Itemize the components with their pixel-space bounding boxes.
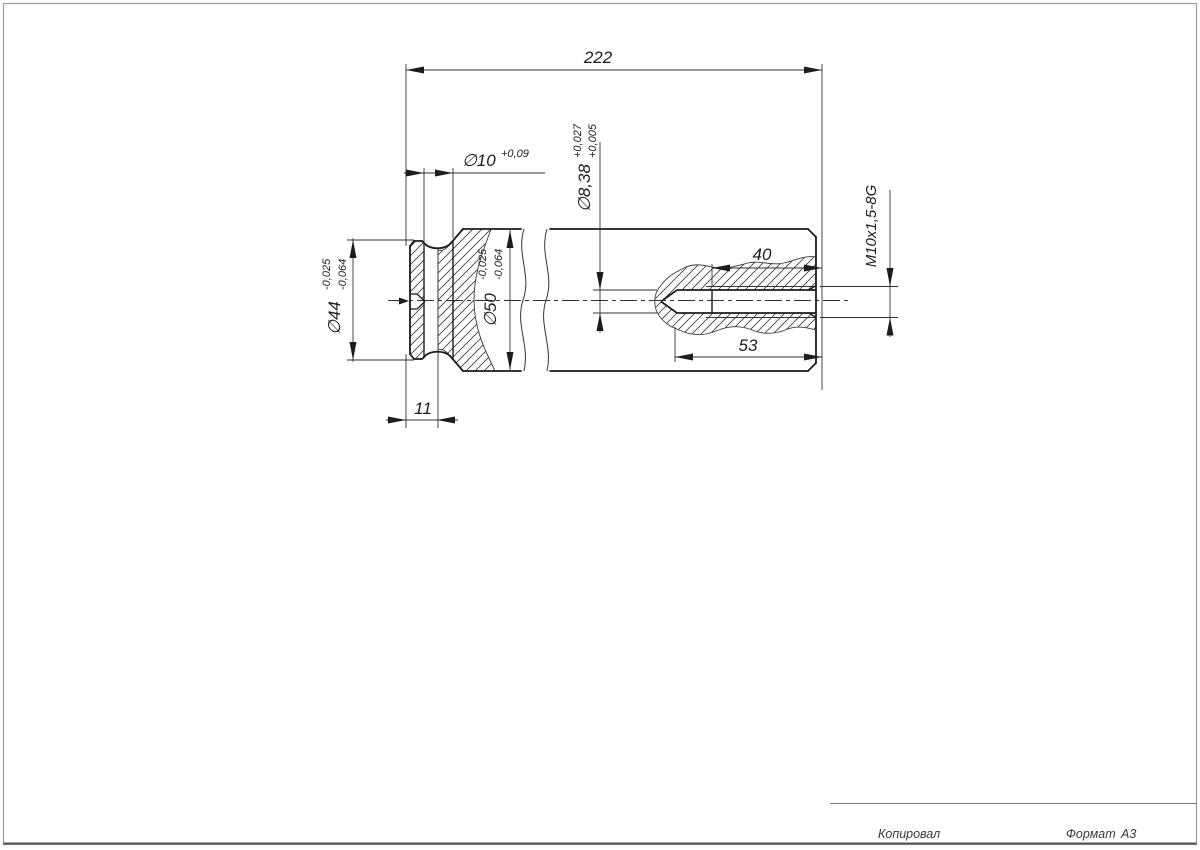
break-lines	[521, 229, 549, 371]
dim-collar-main: ∅44	[325, 301, 344, 335]
dimension-texts: 222 ∅10 +0,09 ∅8,38 +0,027 +0,005 M10x1,…	[321, 48, 880, 418]
copy-stamp: Копировал Формат А3	[878, 827, 1136, 841]
dim-body-main: ∅50	[481, 293, 500, 327]
copied-label: Копировал	[878, 827, 940, 841]
dim-groove-offset: 11	[414, 399, 432, 418]
dim-body-tol-lower: -0,064	[493, 249, 505, 280]
dim-pilot-tol-lower: +0,005	[587, 123, 599, 158]
dim-thread-depth: 40	[753, 245, 772, 264]
dim-body-tol-upper: -0,025	[477, 248, 489, 280]
dim-overall-length: 222	[583, 48, 613, 67]
format-value: А3	[1120, 827, 1136, 841]
dim-collar-tol-lower: -0,064	[337, 259, 349, 290]
dim-groove-main: ∅10	[462, 151, 496, 170]
sheet-border	[4, 4, 1197, 845]
tapped-hole-interior	[661, 290, 816, 313]
drawing-sheet: 222 ∅10 +0,09 ∅8,38 +0,027 +0,005 M10x1,…	[0, 0, 1200, 850]
axis-arrow	[399, 298, 409, 305]
dim-pilot-tol-upper: +0,027	[572, 123, 584, 158]
dim-hole-depth: 53	[739, 336, 758, 355]
technical-drawing: 222 ∅10 +0,09 ∅8,38 +0,027 +0,005 M10x1,…	[0, 0, 1200, 850]
dim-groove-tol: +0,09	[501, 148, 529, 160]
dim-collar-tol-upper: -0,025	[321, 258, 333, 290]
format-label: Формат	[1066, 827, 1116, 841]
dimension-arrows	[350, 67, 894, 424]
dim-thread-spec: M10x1,5-8G	[863, 184, 880, 267]
dim-pilot-main: ∅8,38	[575, 164, 594, 212]
